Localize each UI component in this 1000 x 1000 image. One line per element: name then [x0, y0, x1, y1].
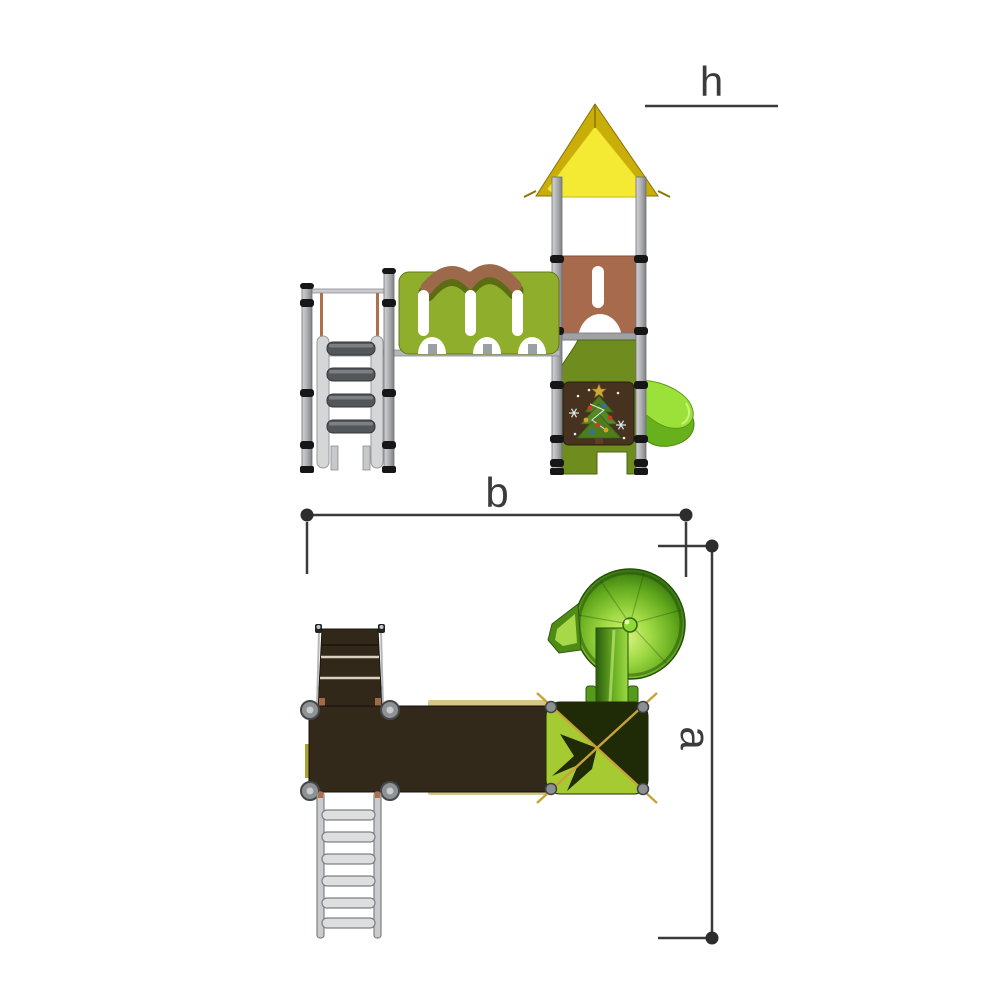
dimension-label-b: b: [430, 472, 564, 514]
dimension-label-a: a: [668, 714, 716, 762]
castle-fence-panel: [399, 271, 559, 354]
roof-plan-square: [537, 693, 657, 803]
fence-arches: [418, 337, 546, 354]
top-plan-view: [301, 569, 685, 938]
metal-ladder: [317, 792, 381, 938]
drawing-canvas: h b a: [0, 0, 1000, 1000]
spiral-slide-disc: [548, 569, 685, 704]
tower-roof: [524, 104, 670, 197]
plan-stairs: [315, 624, 385, 708]
access-stairs: [300, 268, 396, 473]
brown-door-panel: [556, 256, 644, 340]
dimension-label-h: h: [645, 61, 778, 103]
christmas-tree-panel: [563, 382, 634, 445]
walkway-deck: [301, 700, 552, 800]
ladder-rungs: [322, 810, 375, 928]
front-elevation-view: [300, 104, 694, 475]
spiral-slide-exit: [642, 380, 694, 446]
